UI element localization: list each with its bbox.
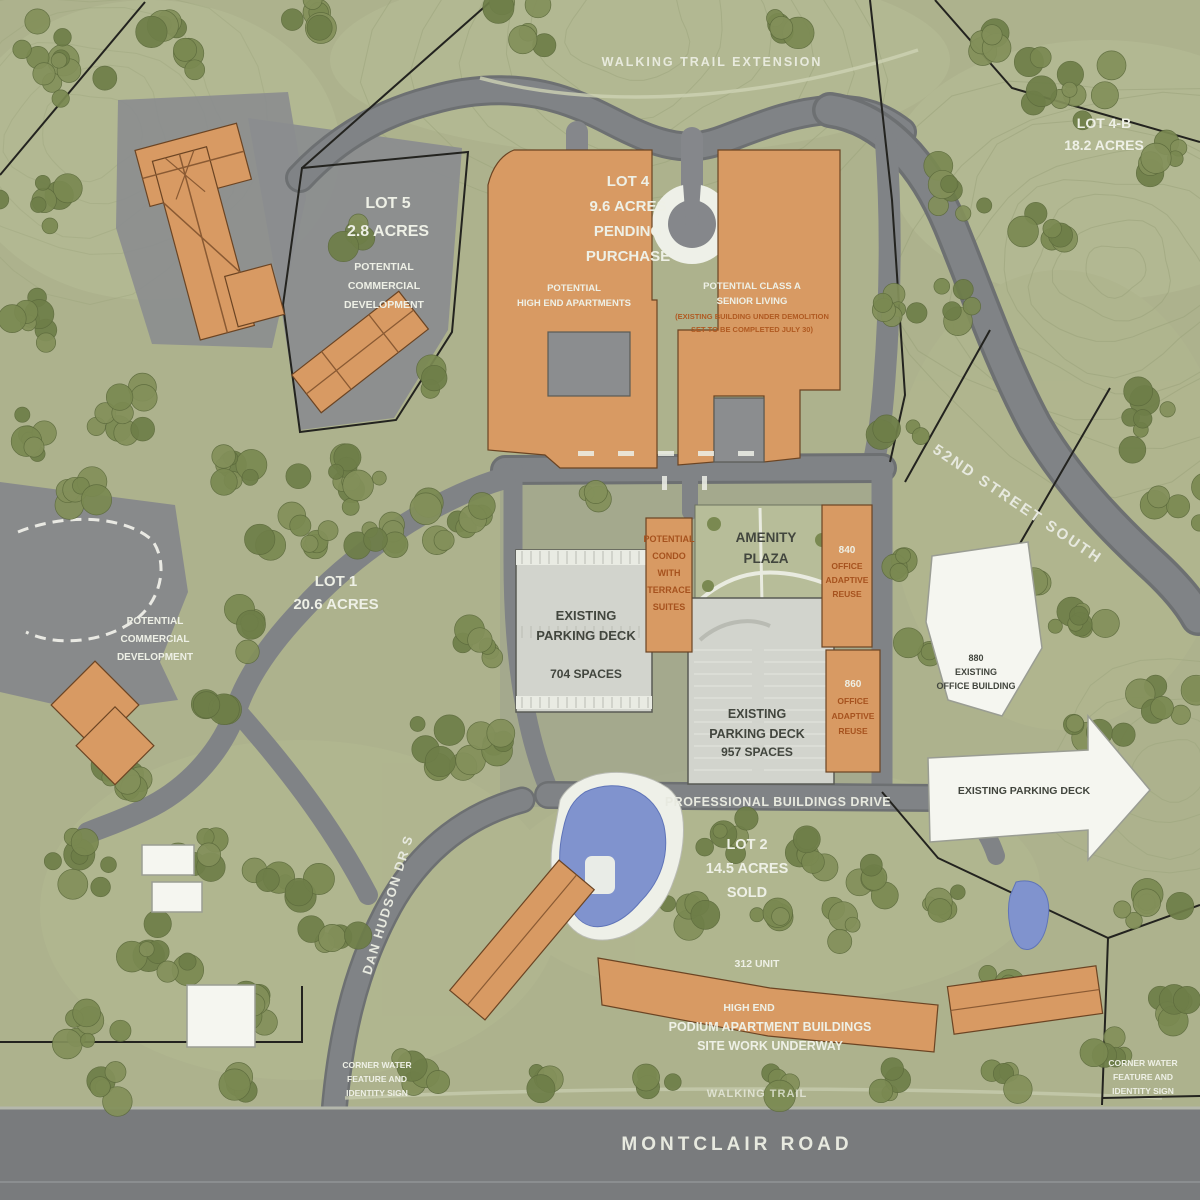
professional-drive-label: PROFESSIONAL BUILDINGS DRIVE	[665, 795, 891, 809]
arrow-deck-label: EXISTING PARKING DECK	[958, 785, 1091, 797]
amenity-plaza-2: PLAZA	[744, 551, 789, 566]
lot5-name: LOT 5	[365, 195, 410, 212]
condo-1: POTENTIAL	[644, 534, 696, 544]
site-plan-map: WALKING TRAIL EXTENSION LOT 5 2.8 ACRES …	[0, 0, 1200, 1200]
senior-living-note-2: SET TO BE COMPLETED JULY 30)	[691, 325, 813, 334]
walking-trail-label: WALKING TRAIL	[707, 1088, 807, 1100]
corner-water-left-3: IDENTITY SIGN	[346, 1088, 408, 1098]
lot4b-name: LOT 4-B	[1077, 115, 1131, 131]
condo-4: TERRACE	[647, 585, 691, 595]
lot2-sold: SOLD	[727, 885, 767, 901]
lot5-use-3: DEVELOPMENT	[344, 299, 425, 311]
deck704-3: 704 SPACES	[550, 667, 622, 681]
apartments-potential-1: POTENTIAL	[547, 283, 601, 294]
office-840-number: 840	[839, 545, 856, 556]
site-plan-svg: WALKING TRAIL EXTENSION LOT 5 2.8 ACRES …	[0, 0, 1200, 1200]
condo-3: WITH	[658, 568, 681, 578]
lot4-acres: 9.6 ACRES	[590, 198, 667, 215]
amenity-plaza-1: AMENITY	[736, 530, 797, 545]
office-860-number: 860	[845, 679, 862, 690]
deck957-3: 957 SPACES	[721, 745, 793, 759]
lot1-use-1: POTENTIAL	[127, 616, 184, 627]
office-860-2: ADAPTIVE	[832, 711, 875, 721]
lot4-pending: PENDING	[594, 223, 662, 240]
lot4-name: LOT 4	[607, 173, 650, 190]
deck957-2: PARKING DECK	[709, 727, 805, 741]
lot5-use-2: COMMERCIAL	[348, 280, 421, 292]
corner-water-left-2: FEATURE AND	[347, 1074, 407, 1084]
lot1-acres: 20.6 ACRES	[293, 596, 378, 613]
lot2-name: LOT 2	[726, 837, 767, 853]
walking-trail-extension-label: WALKING TRAIL EXTENSION	[602, 55, 823, 69]
montclair-road-label: MONTCLAIR ROAD	[621, 1134, 852, 1155]
lot4b-acres: 18.2 ACRES	[1064, 137, 1144, 153]
office-840-1: OFFICE	[831, 561, 862, 571]
senior-living-1: POTENTIAL CLASS A	[703, 281, 801, 292]
lot2-acres: 14.5 ACRES	[706, 861, 789, 877]
podium-2: HIGH END	[723, 1002, 775, 1014]
corner-water-right-3: IDENTITY SIGN	[1112, 1086, 1174, 1096]
lot1-use-3: DEVELOPMENT	[117, 652, 193, 663]
lot5-acres: 2.8 ACRES	[347, 223, 429, 240]
podium-1: 312 UNIT	[735, 958, 781, 970]
lot1-name: LOT 1	[315, 573, 358, 590]
lot1-use-2: COMMERCIAL	[121, 634, 190, 645]
office880-2: EXISTING	[955, 667, 997, 677]
podium-3: PODIUM APARTMENT BUILDINGS	[669, 1020, 872, 1034]
apartments-potential-2: HIGH END APARTMENTS	[517, 298, 631, 309]
office880-1: 880	[968, 653, 983, 663]
lot5-use-1: POTENTIAL	[354, 261, 414, 273]
small-building	[142, 845, 194, 875]
deck704-1: EXISTING	[556, 608, 617, 623]
small-building	[187, 985, 255, 1047]
senior-living-2: SENIOR LIVING	[717, 296, 788, 307]
office880-3: OFFICE BUILDING	[937, 681, 1016, 691]
lot4-purchase: PURCHASE	[586, 248, 670, 265]
office-860-1: OFFICE	[837, 696, 868, 706]
corner-water-left-1: CORNER WATER	[342, 1060, 411, 1070]
corner-water-right-1: CORNER WATER	[1108, 1058, 1177, 1068]
montclair-road	[0, 1108, 1200, 1200]
condo-2: CONDO	[652, 551, 686, 561]
deck957-1: EXISTING	[728, 707, 786, 721]
podium-4: SITE WORK UNDERWAY	[697, 1039, 844, 1053]
office-840-2: ADAPTIVE	[826, 575, 869, 585]
small-building	[152, 882, 202, 912]
deck704-2: PARKING DECK	[536, 628, 636, 643]
corner-water-right-2: FEATURE AND	[1113, 1072, 1173, 1082]
senior-living-note-1: (EXISTING BUILDING UNDER DEMOLITION	[675, 312, 829, 321]
office-840-3: REUSE	[832, 589, 862, 599]
condo-5: SUITES	[653, 602, 686, 612]
office-860-3: REUSE	[838, 726, 868, 736]
